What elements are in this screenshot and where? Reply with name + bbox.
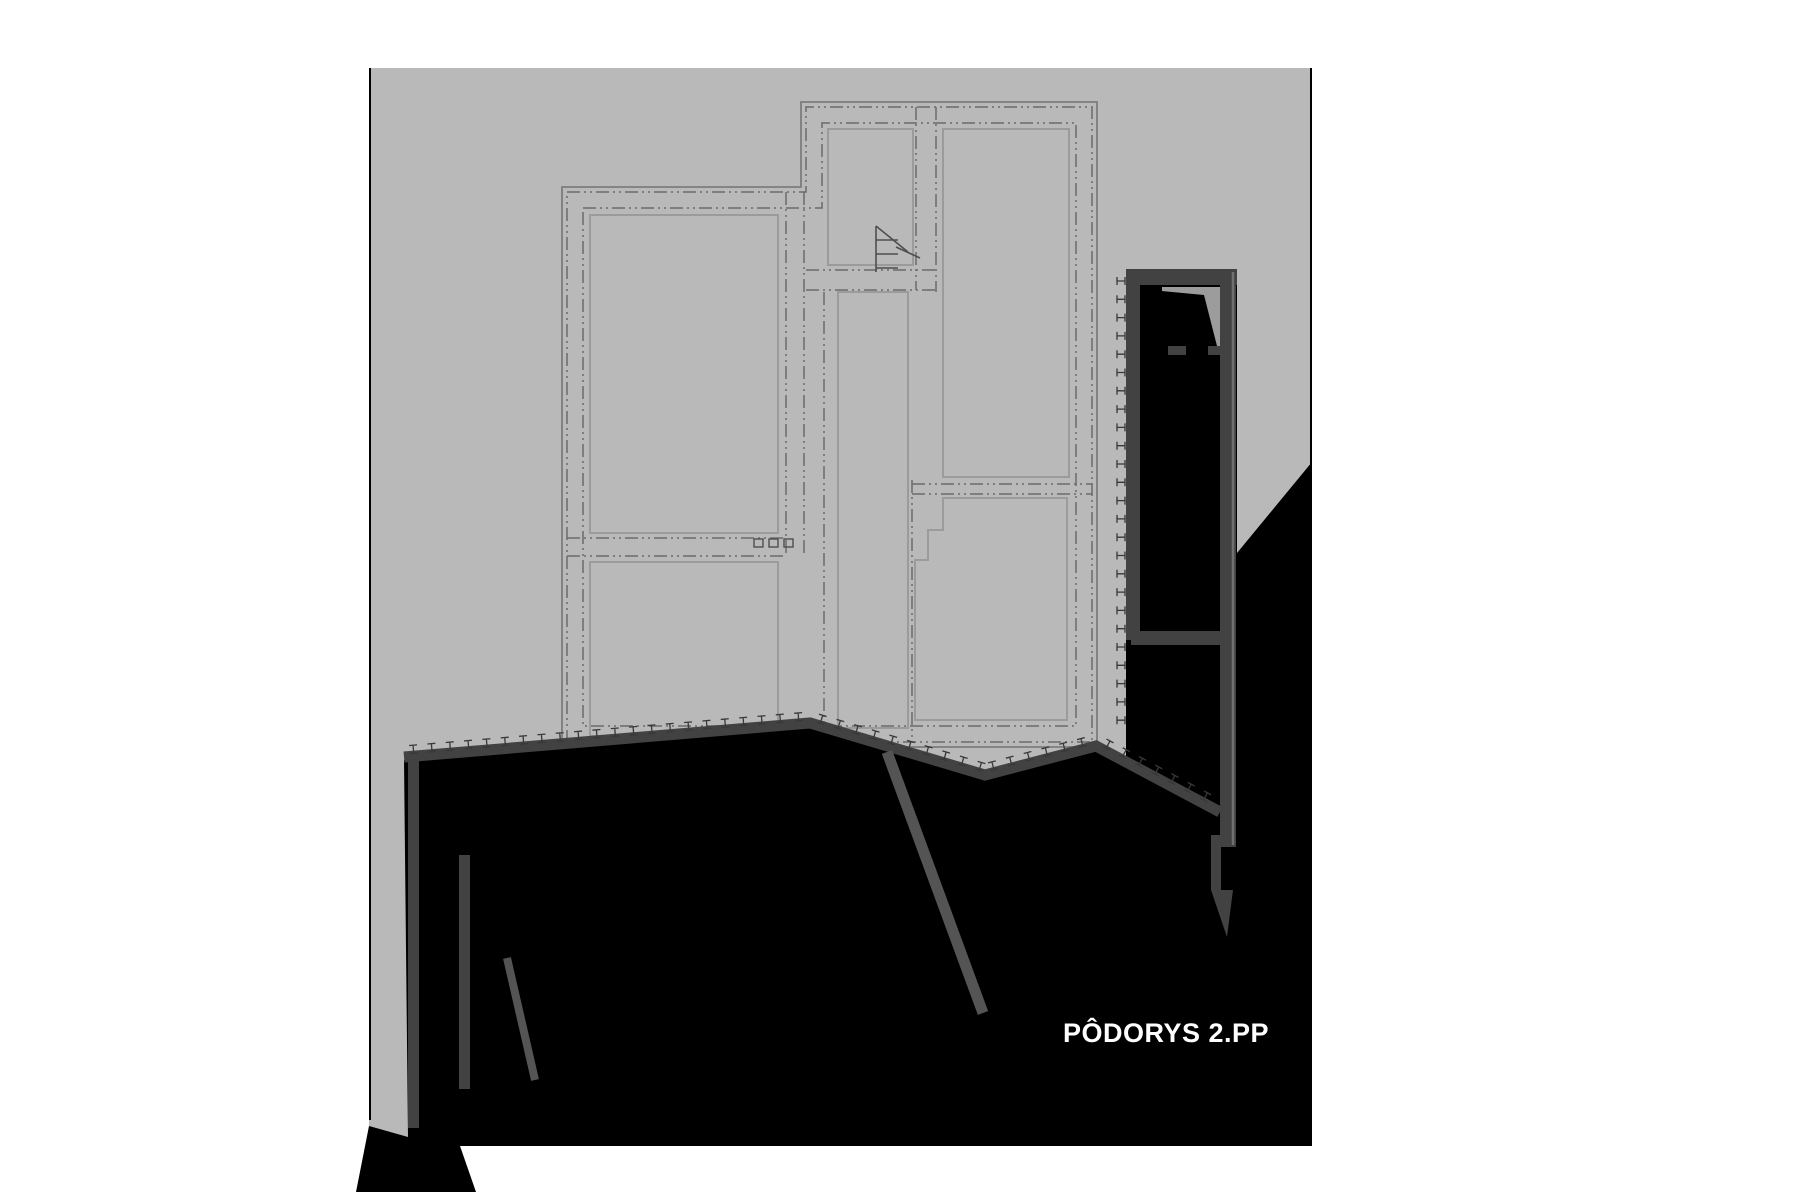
right-wall-stub bbox=[1131, 631, 1222, 645]
wall-stub bbox=[1208, 346, 1223, 355]
right-wall-lower-strip bbox=[1211, 835, 1221, 890]
right-wall-inner bbox=[1126, 284, 1140, 640]
floor-plan-drawing: PÔDORYS 2.PP bbox=[0, 0, 1800, 1192]
page: PÔDORYS 2.PP bbox=[0, 0, 1800, 1192]
drawing-title: PÔDORYS 2.PP bbox=[1063, 1017, 1269, 1048]
wall-bar bbox=[408, 757, 419, 1128]
wall-stub bbox=[1168, 346, 1186, 355]
wall-bar bbox=[459, 855, 470, 1089]
